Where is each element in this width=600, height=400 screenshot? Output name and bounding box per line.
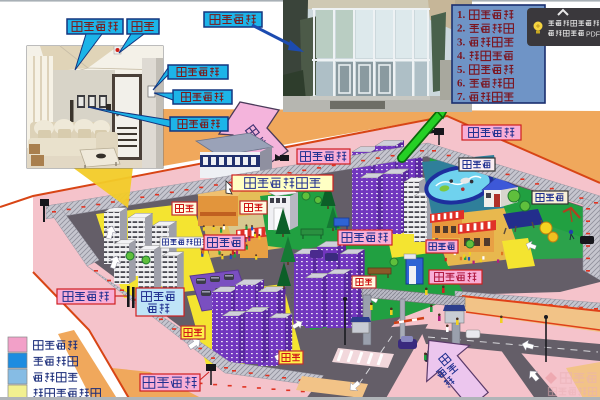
svg-text:1.: 1. [457,9,466,21]
svg-text:PDF: PDF [586,32,600,39]
svg-text:3.: 3. [457,36,466,48]
svg-text:2.: 2. [457,23,466,35]
svg-text:6.: 6. [457,78,466,90]
svg-text:4.: 4. [457,50,466,62]
svg-text:7.: 7. [457,91,466,103]
svg-text:5.: 5. [457,64,466,76]
